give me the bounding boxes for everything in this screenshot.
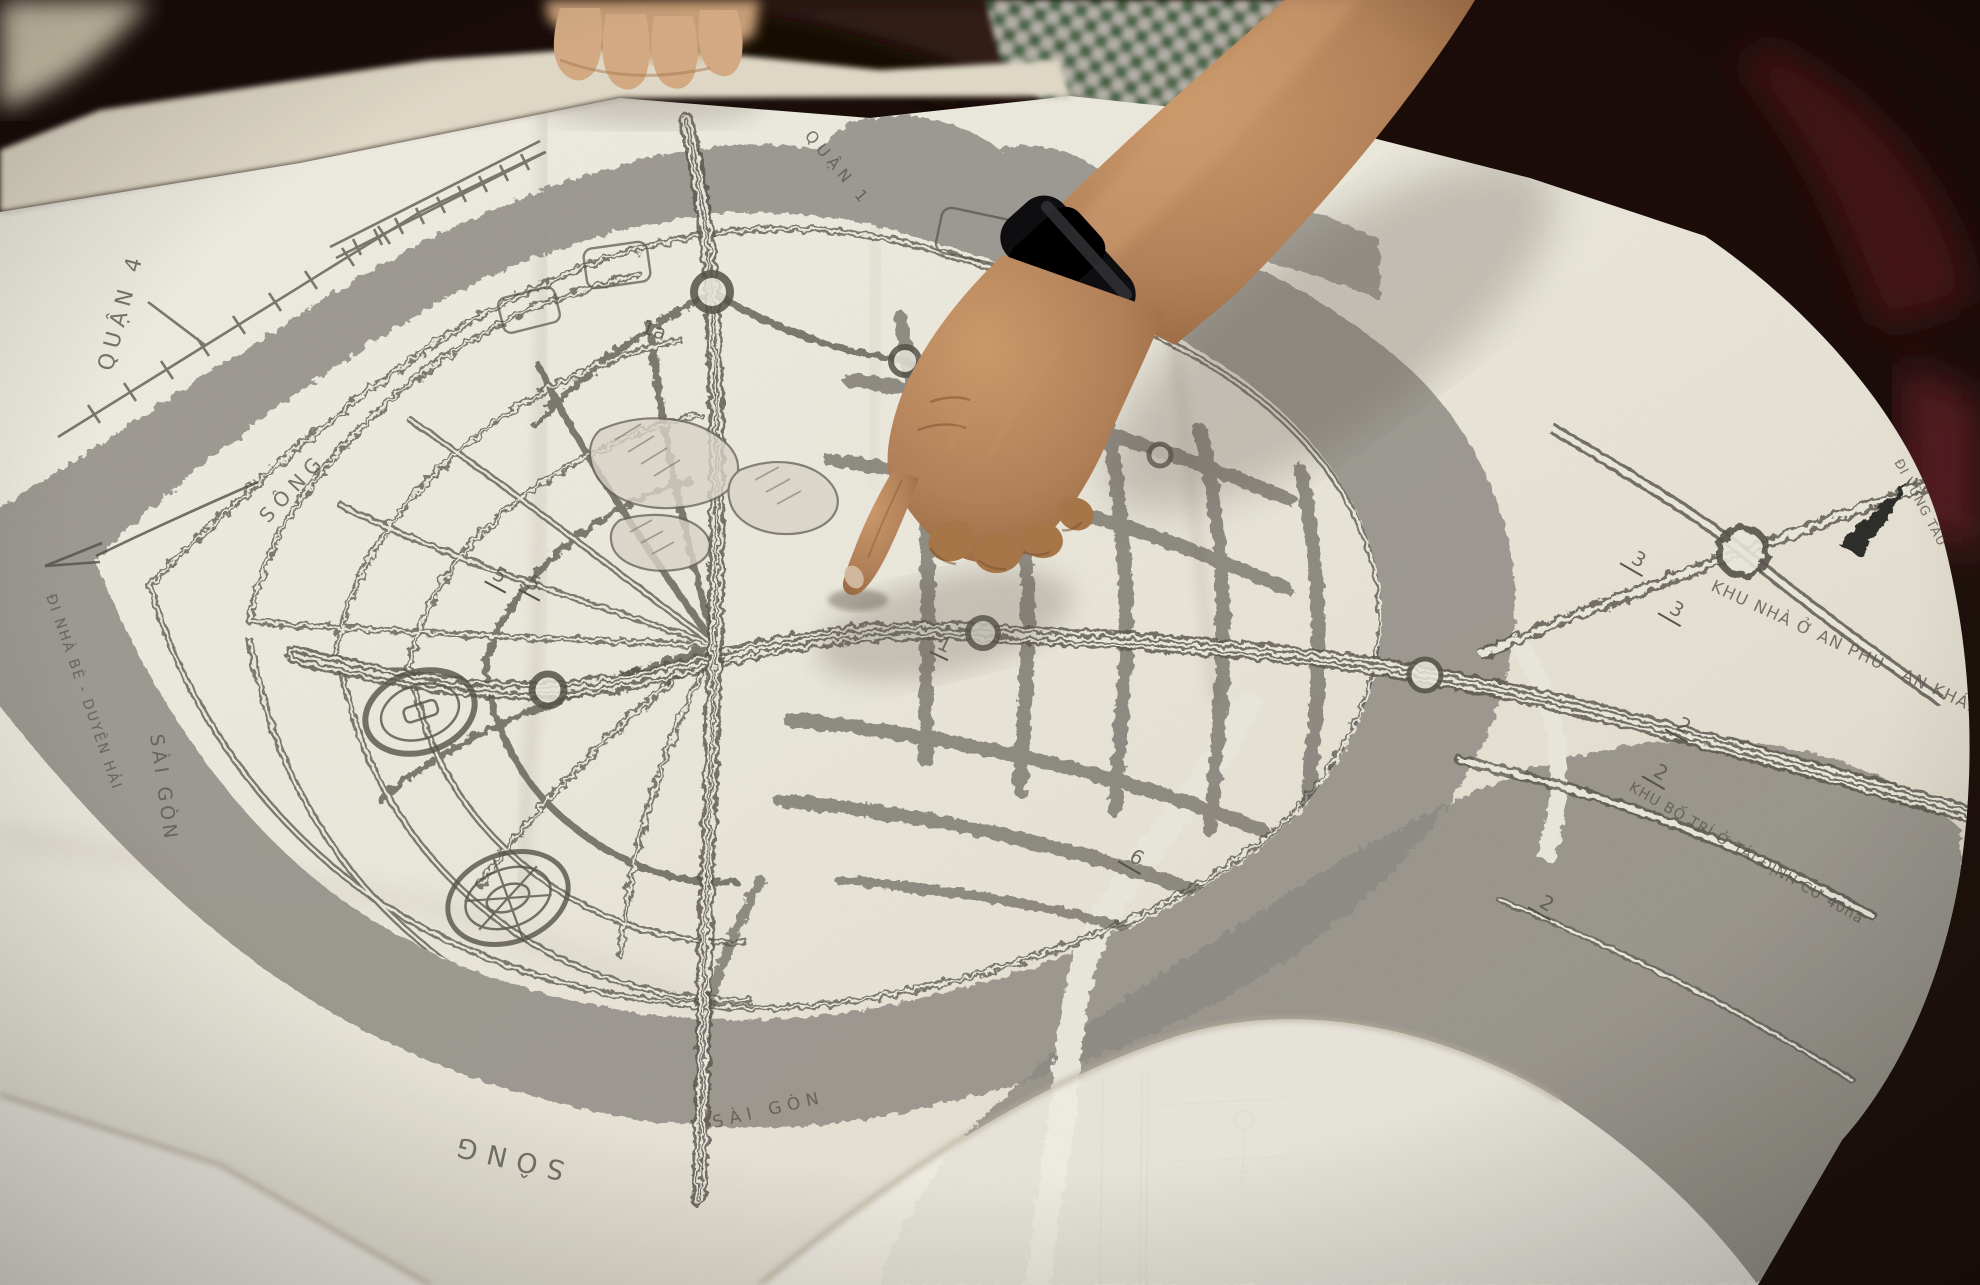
scene-svg: QUẬN 4 QUẬN 1 SÔNG SÀI GÒN SÔNG KHU NHÀ … [0,0,1980,1285]
vignette [0,0,1980,1285]
photo-of-map-scene: QUẬN 4 QUẬN 1 SÔNG SÀI GÒN SÔNG KHU NHÀ … [0,0,1980,1285]
